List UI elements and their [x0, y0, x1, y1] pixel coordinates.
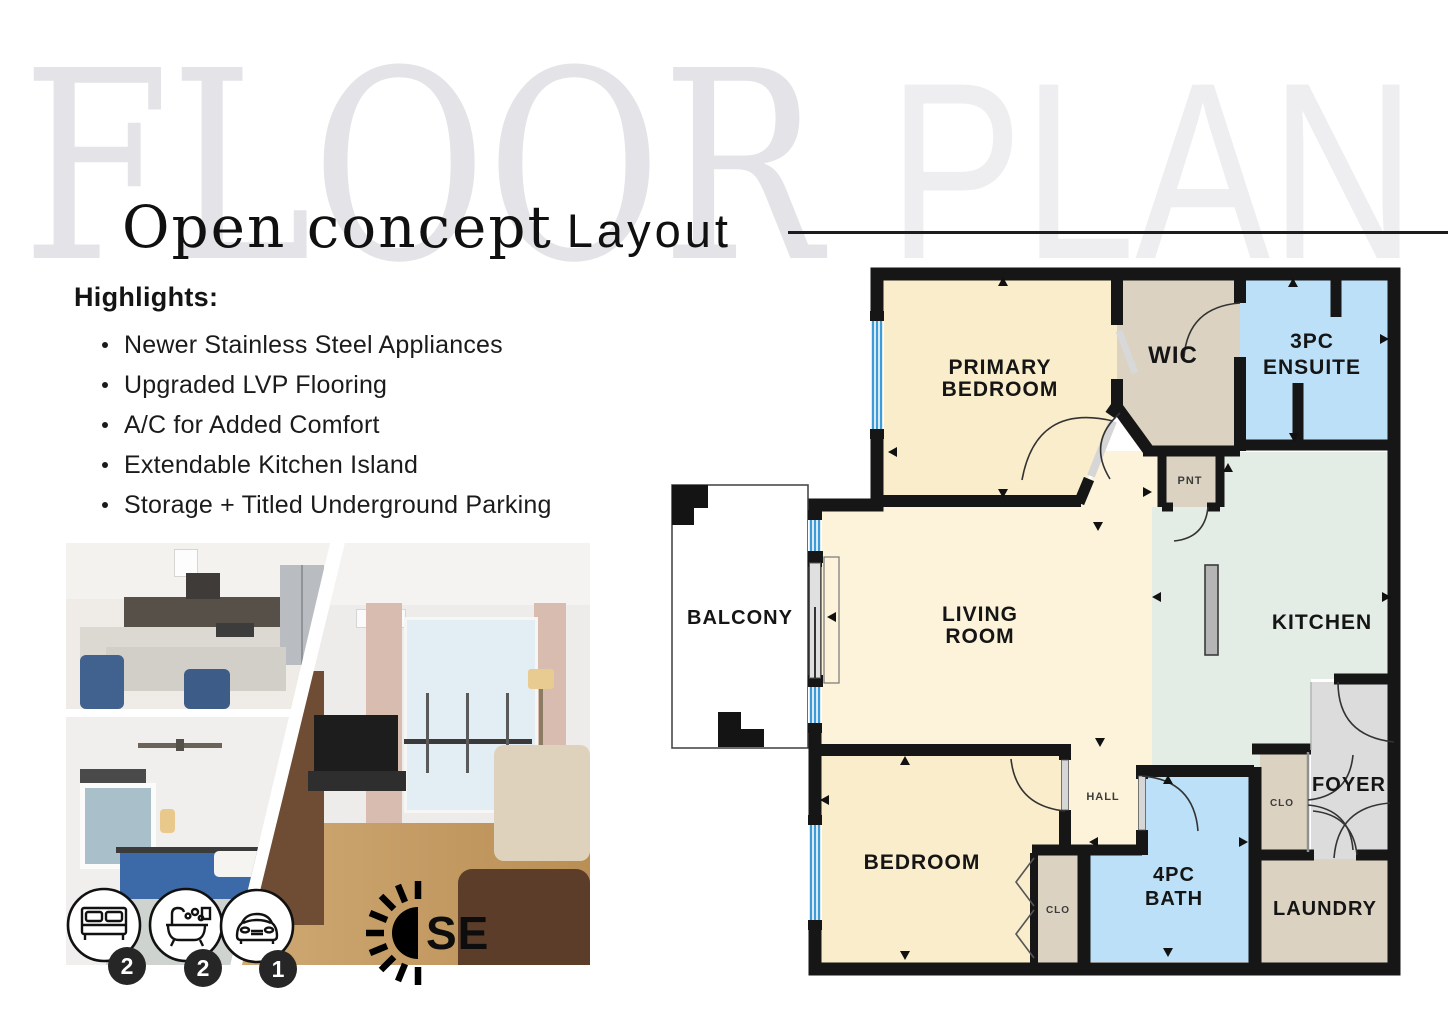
label-primary-bedroom: PRIMARY — [948, 356, 1051, 379]
highlights-heading: Highlights: — [74, 282, 674, 313]
label-kitchen: KITCHEN — [1272, 611, 1372, 634]
label-bedroom: BEDROOM — [864, 851, 981, 874]
highlight-item: Upgraded LVP Flooring — [74, 365, 674, 405]
bullet-dot — [102, 502, 108, 508]
bullet-dot — [102, 342, 108, 348]
stat-bathrooms: 2 — [150, 889, 222, 987]
highlights-section: Highlights: Newer Stainless Steel Applia… — [74, 282, 674, 525]
bedrooms-count: 2 — [121, 953, 134, 979]
highlight-item: Newer Stainless Steel Appliances — [74, 325, 674, 365]
label-foyer-closet: CLO — [1270, 798, 1294, 809]
kitchen-island — [1205, 565, 1218, 655]
bullet-dot — [102, 382, 108, 388]
highlight-text: A/C for Added Comfort — [124, 411, 380, 440]
highlights-list: Newer Stainless Steel Appliances Upgrade… — [74, 325, 674, 525]
label-primary-bedroom: BEDROOM — [942, 378, 1059, 401]
bathrooms-count: 2 — [197, 955, 210, 981]
floorplan: PRIMARY BEDROOM WIC 3PC ENSUITE PNT BALC… — [660, 255, 1410, 985]
label-ensuite: 3PC — [1290, 330, 1334, 353]
parking-count: 1 — [272, 956, 285, 982]
highlight-item: Storage + Titled Underground Parking — [74, 485, 674, 525]
label-bedroom-closet: CLO — [1046, 905, 1070, 916]
page-title: Open concept Layout — [122, 193, 732, 261]
label-ensuite: ENSUITE — [1263, 356, 1361, 379]
label-bath: BATH — [1145, 888, 1203, 910]
highlight-item: A/C for Added Comfort — [74, 405, 674, 445]
highlight-text: Storage + Titled Underground Parking — [124, 491, 552, 520]
label-balcony: BALCONY — [687, 607, 793, 629]
highlight-item: Extendable Kitchen Island — [74, 445, 674, 485]
label-foyer: FOYER — [1312, 774, 1386, 796]
label-living-room: LIVING — [942, 603, 1018, 626]
watermark-plan: PLAN — [888, 31, 1416, 290]
page-title-serif: Open concept — [122, 193, 553, 261]
title-underline — [788, 231, 1448, 234]
label-laundry: LAUNDRY — [1273, 898, 1377, 920]
label-hall: HALL — [1086, 791, 1119, 803]
bullet-dot — [102, 462, 108, 468]
label-living-room: ROOM — [945, 625, 1014, 648]
highlight-text: Upgraded LVP Flooring — [124, 371, 387, 400]
label-bath: 4PC — [1153, 864, 1195, 886]
stat-bedrooms: 2 — [68, 889, 146, 985]
stat-parking: 1 — [221, 890, 297, 988]
orientation-indicator: SE — [350, 865, 520, 1005]
highlight-text: Extendable Kitchen Island — [124, 451, 418, 480]
highlight-text: Newer Stainless Steel Appliances — [124, 331, 503, 360]
label-pantry: PNT — [1178, 475, 1203, 487]
page-title-sans: Layout — [567, 203, 732, 258]
bullet-dot — [102, 422, 108, 428]
sun-icon — [366, 881, 418, 985]
label-wic: WIC — [1148, 342, 1198, 369]
orientation-label: SE — [426, 907, 489, 959]
flyer-page: FLOOR PLAN Open concept Layout Highlight… — [0, 0, 1448, 1024]
